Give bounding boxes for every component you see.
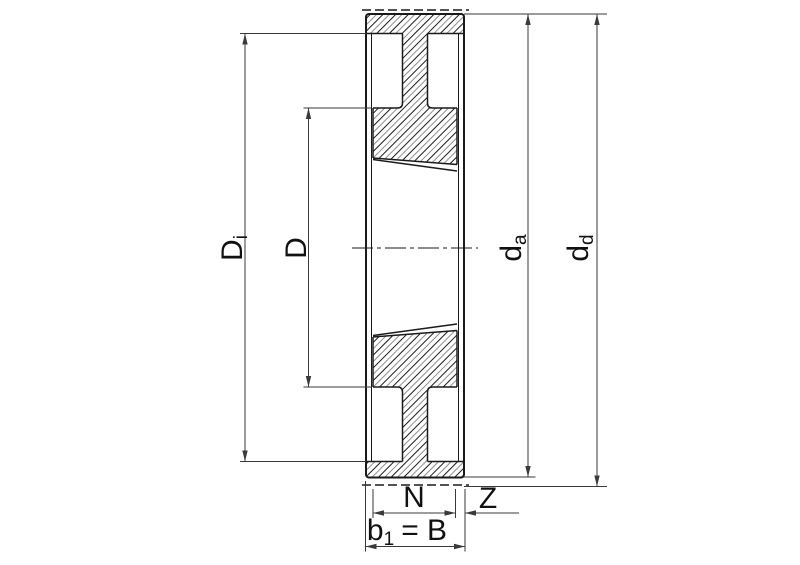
D-arrow-down	[306, 376, 311, 387]
b1B-label: b1= B	[367, 514, 447, 550]
dimension-Z: Z	[465, 482, 519, 552]
pulley-section-hatching	[366, 14, 464, 478]
dd-label: dd	[562, 234, 598, 261]
pulley-technical-drawing: Di D da dd N Z	[0, 0, 800, 565]
N-label: N	[403, 481, 425, 514]
rim-top-section	[366, 14, 464, 34]
dimension-N: N	[373, 481, 456, 518]
Z-label: Z	[479, 482, 497, 515]
dimension-dd: dd	[464, 14, 607, 487]
b1B-arrow-right	[454, 544, 465, 549]
drawing-svg: Di D da dd N Z	[0, 0, 800, 565]
Di-arrow-up	[242, 34, 247, 45]
Di-label: Di	[216, 235, 252, 261]
D-label: D	[280, 237, 313, 259]
rim-bottom-section	[366, 462, 464, 478]
da-arrow-up	[525, 14, 530, 25]
da-label: da	[495, 234, 531, 262]
dd-arrow-down	[594, 476, 599, 487]
Di-arrow-down	[242, 451, 247, 462]
hub-bottom-section	[373, 331, 457, 388]
dd-arrow-up	[594, 14, 599, 25]
web-bottom-section	[403, 387, 428, 462]
da-arrow-down	[525, 466, 530, 477]
D-arrow-up	[306, 108, 311, 119]
web-top-section	[403, 34, 428, 109]
Z-arrow-left	[465, 510, 476, 515]
hub-top-section	[373, 108, 457, 165]
